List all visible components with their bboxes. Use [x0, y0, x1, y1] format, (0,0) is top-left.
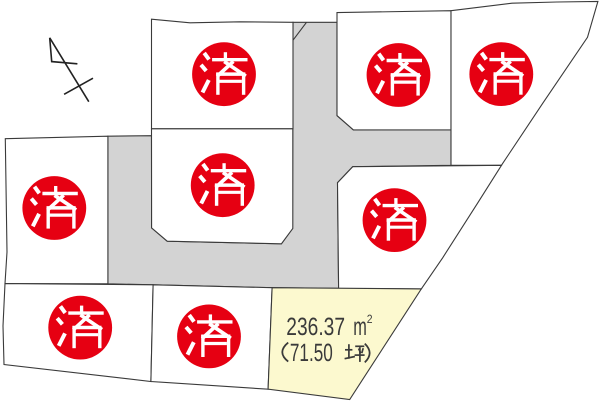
svg-text:236.37: 236.37 [286, 313, 345, 341]
svg-text:2: 2 [367, 312, 373, 326]
svg-text:71.50: 71.50 [290, 339, 333, 367]
svg-text:m: m [353, 313, 367, 341]
